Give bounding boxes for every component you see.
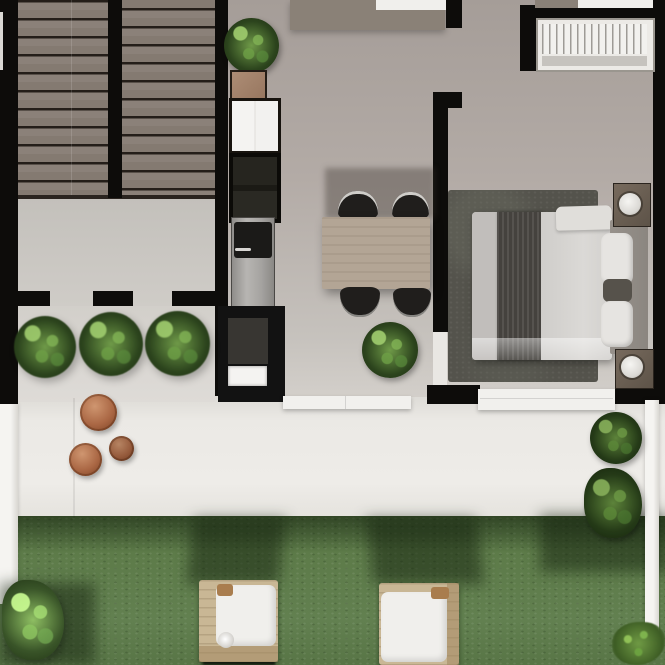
bedroom-wall-stub-top xyxy=(446,0,462,28)
island-counter-inset xyxy=(228,318,268,364)
refrigerator-handle xyxy=(235,248,251,251)
planter-row-plant-2 xyxy=(79,312,143,376)
lounger-shadow-right xyxy=(367,518,484,584)
bedroom-wall-bottom-left xyxy=(427,385,480,404)
fence-left xyxy=(0,404,18,604)
door-mat-track-line xyxy=(480,398,613,399)
lounger-left-towel-curl xyxy=(218,632,234,648)
stair-landing-floor xyxy=(18,198,215,306)
stair-flight-right xyxy=(122,0,215,198)
lounger-right-cushion xyxy=(381,592,447,662)
stair-room-wall-a xyxy=(0,291,50,306)
stair-room-wall-c xyxy=(172,291,218,306)
bedroom-wall-left-vertical xyxy=(433,92,448,332)
stair-divider-wall xyxy=(108,0,122,198)
duvet-folded-edge xyxy=(556,205,613,230)
terrace-shrub-upper xyxy=(590,412,642,464)
kitchen-island xyxy=(218,306,285,402)
kitchen-white-cabinet xyxy=(229,98,281,154)
table-lamp-top xyxy=(619,193,641,215)
sun-lounger-left xyxy=(199,580,278,662)
planter-row-plant-1 xyxy=(14,316,76,378)
left-wall-highlight xyxy=(0,12,3,70)
table-lamp-bottom xyxy=(621,356,643,378)
bedroom-side-door-opening xyxy=(433,332,447,388)
dining-potted-plant xyxy=(362,322,418,378)
counter-white-appliance xyxy=(376,0,446,10)
floor-plan-render xyxy=(0,0,665,665)
lounger-shadow-left xyxy=(187,518,286,584)
step-seam xyxy=(345,396,346,409)
bed-foot-fold xyxy=(472,338,612,360)
window-exterior-strip-gray xyxy=(535,0,578,8)
kitchen-potted-plant xyxy=(224,18,279,73)
terrace-shrub-lower xyxy=(584,468,642,538)
stair-flight-left xyxy=(18,0,108,198)
bed-pillow-top xyxy=(601,233,633,285)
hall-terrace-step xyxy=(283,396,411,409)
window-slats xyxy=(542,24,647,54)
kitchen-glass-cabinet xyxy=(229,153,281,223)
planter-row-plant-3 xyxy=(145,311,210,376)
dining-table xyxy=(322,217,430,289)
bedroom-louvered-window xyxy=(536,18,655,72)
bed-pillow-bottom xyxy=(601,301,633,347)
kitchen-sink xyxy=(228,366,267,386)
stair-flight-seam xyxy=(71,0,72,198)
bed-accent-pillow xyxy=(603,279,632,302)
lounger-left-foot-rail xyxy=(199,646,278,662)
window-exterior-strip-white xyxy=(578,0,653,8)
stair-room-wall-b xyxy=(93,291,133,306)
window-sill xyxy=(542,56,647,66)
fence-right xyxy=(645,400,659,635)
refrigerator xyxy=(231,217,275,309)
lounger-left-pillow xyxy=(217,584,233,596)
bedroom-terrace-door-mat xyxy=(478,389,615,410)
terracotta-stool-medium xyxy=(69,443,102,476)
refrigerator-door-panel xyxy=(234,222,272,258)
sun-lounger-right xyxy=(379,583,459,665)
terracotta-stool-small xyxy=(109,436,134,461)
terracotta-stool-large xyxy=(80,394,117,431)
lounger-right-pillow xyxy=(431,587,449,599)
